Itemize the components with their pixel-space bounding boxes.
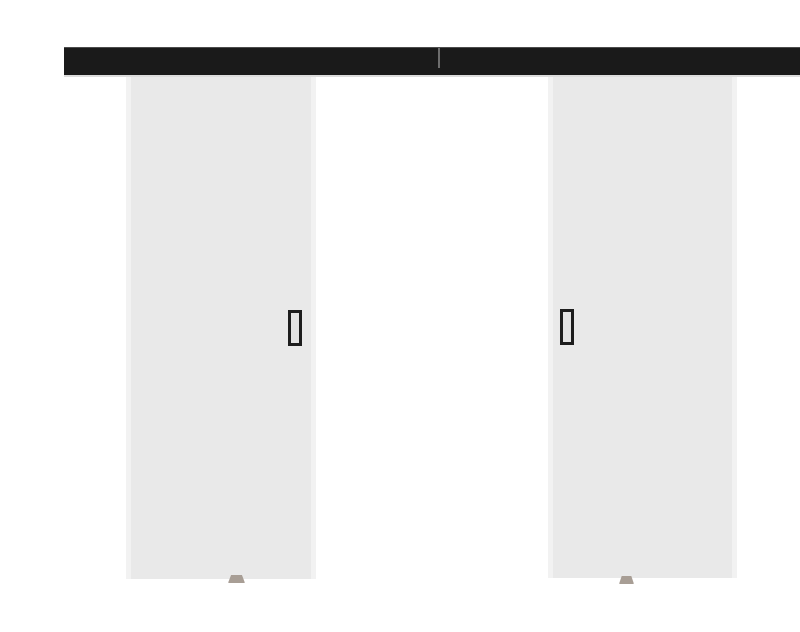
under-track-highlight-line bbox=[64, 75, 800, 77]
right-door-panel bbox=[548, 75, 737, 578]
track-top-edge-highlight bbox=[64, 47, 800, 48]
right-door-handle bbox=[560, 309, 574, 345]
right-door-right-edge-highlight bbox=[732, 75, 737, 578]
left-door-left-edge-highlight bbox=[126, 75, 131, 579]
left-door-handle bbox=[288, 310, 302, 346]
right-door-left-edge-highlight bbox=[548, 75, 553, 578]
left-door-right-edge-highlight bbox=[311, 75, 316, 579]
sliding-doors-product-photo bbox=[40, 16, 800, 616]
track-joint-seam bbox=[438, 48, 440, 68]
sliding-door-track bbox=[64, 47, 800, 75]
